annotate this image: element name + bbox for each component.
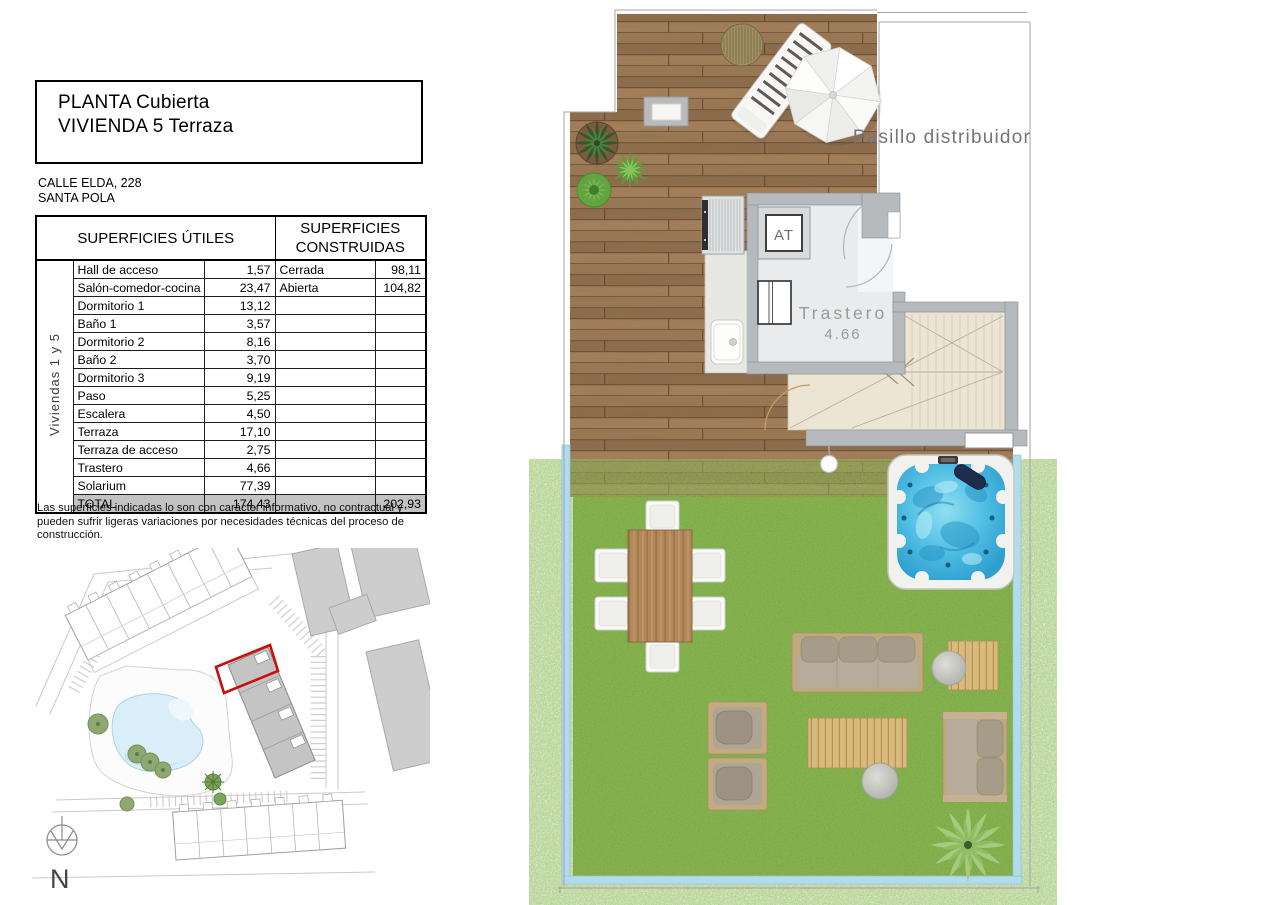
at-label: AT xyxy=(774,227,794,244)
round-table xyxy=(721,24,763,66)
stone-stool xyxy=(932,651,966,685)
skylight-box xyxy=(644,97,688,126)
coffee-table xyxy=(808,718,907,768)
table-row: Terraza17,10 xyxy=(36,423,426,441)
corridor-label: Pasillo distribuidor xyxy=(853,127,1031,148)
table-row: Paso5,25 xyxy=(36,387,426,405)
disclaimer-text: Las superficies indicadas lo son con car… xyxy=(37,502,429,543)
sink xyxy=(711,320,743,364)
stone-stool xyxy=(862,763,898,799)
table-row: Solarium77,39 xyxy=(36,477,426,495)
row-group-label: Viviendas 1 y 5 xyxy=(36,260,73,513)
site-building-row-top xyxy=(62,548,258,672)
table-row: Escalera4,50 xyxy=(36,405,426,423)
outdoor-kitchen-counter xyxy=(705,251,747,373)
table-row: Dormitorio 113,12 xyxy=(36,297,426,315)
table-row: Viviendas 1 y 5Hall de acceso1,57Cerrada… xyxy=(36,260,426,279)
plan-title-line2: VIVIENDA 5 Terraza xyxy=(58,115,421,139)
three-seat-sofa xyxy=(792,633,923,692)
dining-table xyxy=(628,530,692,642)
shaft xyxy=(758,281,791,324)
at-cabinet: AT xyxy=(758,207,810,259)
table-row: Dormitorio 28,16 xyxy=(36,333,426,351)
storage-room-label: Trastero xyxy=(799,303,888,323)
window xyxy=(965,433,1013,448)
table-row: Baño 13,57 xyxy=(36,315,426,333)
surfaces-table-body: Viviendas 1 y 5Hall de acceso1,57Cerrada… xyxy=(36,260,426,513)
header-superficies-construidas: SUPERFICIES CONSTRUIDAS xyxy=(275,216,426,260)
plan-sheet: AT xyxy=(0,0,1280,905)
ac-unit xyxy=(702,196,744,254)
north-compass xyxy=(47,816,77,855)
address-line1: CALLE ELDA, 228 xyxy=(38,176,142,191)
table-row: Baño 23,70 xyxy=(36,351,426,369)
armchair xyxy=(708,758,767,810)
sink-drain xyxy=(730,339,737,346)
armchair xyxy=(708,702,767,754)
table-row: Trastero4,66 xyxy=(36,459,426,477)
plan-title-line1: PLANTA Cubierta xyxy=(58,91,421,115)
north-label: N xyxy=(50,864,70,894)
site-plan: N xyxy=(30,548,430,900)
table-row: Salón-comedor-cocina23,47Abierta104,82 xyxy=(36,279,426,297)
surfaces-table: SUPERFICIES ÚTILES SUPERFICIES CONSTRUID… xyxy=(35,215,427,514)
site-building-row-bottom xyxy=(172,793,345,860)
two-seat-sofa xyxy=(943,712,1007,802)
address-block: CALLE ELDA, 228 SANTA POLA xyxy=(38,176,142,206)
table-row: Terraza de acceso2,75 xyxy=(36,441,426,459)
title-box: PLANTA Cubierta VIVIENDA 5 Terraza xyxy=(35,80,423,164)
jacuzzi xyxy=(888,455,1014,589)
wall-notch xyxy=(888,212,900,238)
storage-room-area: 4.66 xyxy=(824,326,861,343)
bush-plant xyxy=(577,173,611,207)
address-line2: SANTA POLA xyxy=(38,191,142,206)
header-superficies-utiles: SUPERFICIES ÚTILES xyxy=(36,216,275,260)
table-row: Dormitorio 39,19 xyxy=(36,369,426,387)
